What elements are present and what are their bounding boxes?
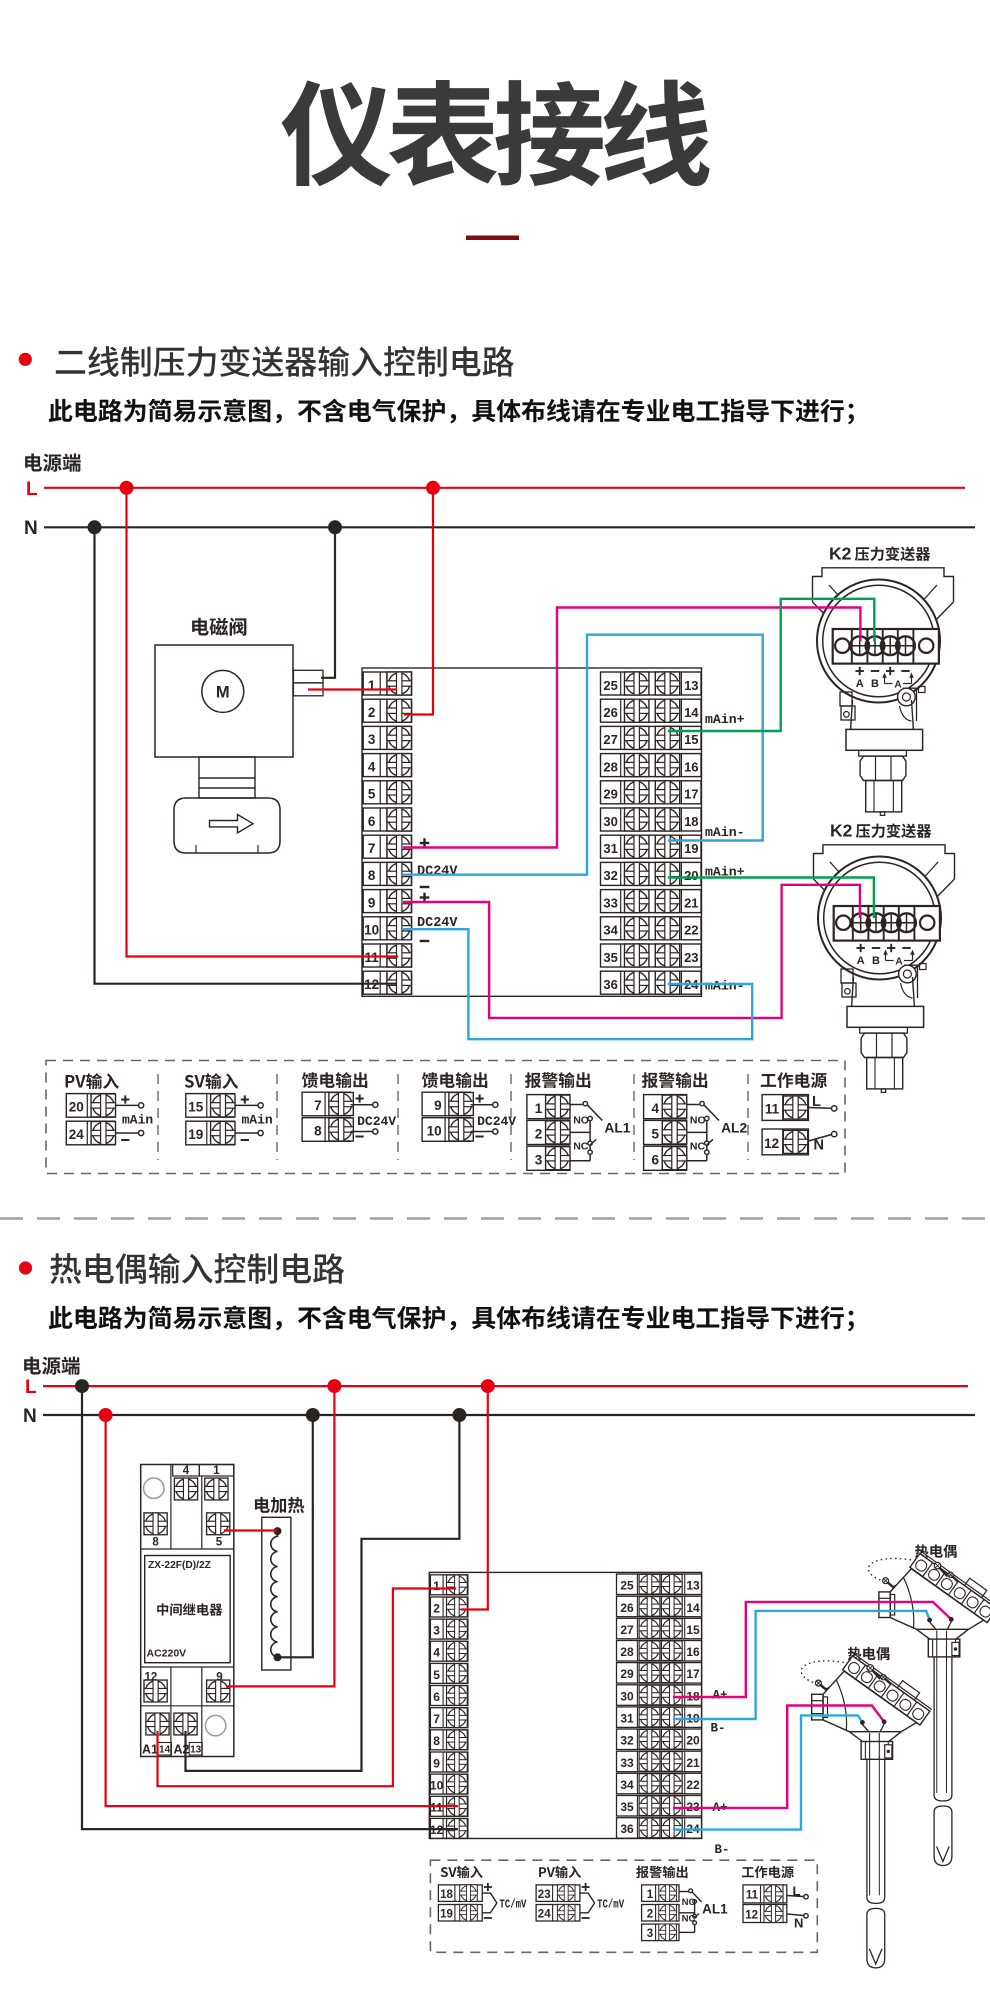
svg-text:ZX-22F(D)/2Z: ZX-22F(D)/2Z xyxy=(148,1560,211,1571)
svg-text:25: 25 xyxy=(603,678,617,693)
svg-text:20: 20 xyxy=(684,868,698,883)
svg-text:14: 14 xyxy=(159,1745,171,1756)
svg-text:21: 21 xyxy=(686,1756,700,1770)
svg-text:30: 30 xyxy=(603,814,617,829)
svg-text:M: M xyxy=(216,684,230,702)
svg-text:4: 4 xyxy=(651,1101,659,1116)
svg-text:33: 33 xyxy=(603,895,617,910)
svg-text:3: 3 xyxy=(647,1928,653,1940)
svg-text:1: 1 xyxy=(213,1465,220,1477)
svg-text:B-: B- xyxy=(711,1722,726,1736)
svg-text:18: 18 xyxy=(684,814,698,829)
svg-text:24: 24 xyxy=(538,1909,551,1921)
svg-text:5: 5 xyxy=(433,1668,440,1682)
svg-text:3: 3 xyxy=(535,1152,543,1167)
svg-text:A1: A1 xyxy=(142,1743,158,1757)
svg-text:14: 14 xyxy=(686,1601,700,1615)
svg-text:DC24V: DC24V xyxy=(357,1114,396,1129)
svg-text:30: 30 xyxy=(620,1689,634,1703)
svg-text:NO: NO xyxy=(690,1115,706,1127)
svg-text:N: N xyxy=(23,1406,37,1427)
svg-text:26: 26 xyxy=(603,705,617,720)
svg-text:27: 27 xyxy=(620,1623,634,1637)
svg-text:5: 5 xyxy=(651,1127,659,1142)
svg-text:27: 27 xyxy=(603,732,617,747)
svg-text:7: 7 xyxy=(433,1712,440,1726)
svg-text:23: 23 xyxy=(538,1889,551,1901)
svg-text:10: 10 xyxy=(364,923,379,938)
svg-text:19: 19 xyxy=(684,841,698,856)
svg-text:6: 6 xyxy=(651,1152,659,1167)
svg-text:3: 3 xyxy=(433,1624,440,1638)
svg-text:28: 28 xyxy=(603,759,617,774)
svg-text:8: 8 xyxy=(314,1124,322,1139)
svg-text:2: 2 xyxy=(647,1909,653,1921)
svg-text:16: 16 xyxy=(684,759,698,774)
svg-text:24: 24 xyxy=(69,1127,85,1142)
svg-text:36: 36 xyxy=(620,1822,634,1836)
svg-text:NO: NO xyxy=(573,1115,589,1127)
svg-text:mAin: mAin xyxy=(242,1113,273,1128)
svg-text:11: 11 xyxy=(746,1890,759,1902)
svg-text:19: 19 xyxy=(440,1909,453,1921)
svg-text:34: 34 xyxy=(620,1778,634,1792)
svg-text:AC220V: AC220V xyxy=(147,1648,187,1660)
svg-text:1: 1 xyxy=(535,1101,543,1116)
svg-text:DC24V: DC24V xyxy=(417,865,458,880)
svg-text:35: 35 xyxy=(603,950,617,965)
svg-text:31: 31 xyxy=(603,841,617,856)
svg-text:B-: B- xyxy=(715,1843,730,1857)
svg-text:2: 2 xyxy=(368,705,376,720)
svg-text:mAin-: mAin- xyxy=(705,979,745,994)
svg-text:8: 8 xyxy=(368,868,376,883)
svg-text:9: 9 xyxy=(434,1098,442,1113)
svg-text:mAin-: mAin- xyxy=(705,825,745,840)
svg-text:AL2: AL2 xyxy=(721,1121,747,1136)
svg-text:L: L xyxy=(26,479,38,500)
svg-text:17: 17 xyxy=(686,1667,700,1681)
svg-text:8: 8 xyxy=(152,1537,159,1549)
svg-text:17: 17 xyxy=(684,787,698,802)
svg-text:15: 15 xyxy=(686,1623,700,1637)
svg-text:1: 1 xyxy=(433,1579,440,1593)
svg-text:21: 21 xyxy=(684,895,698,910)
svg-text:12: 12 xyxy=(764,1136,779,1151)
svg-text:TC/mV: TC/mV xyxy=(499,1899,526,1912)
svg-text:7: 7 xyxy=(368,841,376,856)
svg-text:29: 29 xyxy=(620,1667,634,1681)
svg-text:4: 4 xyxy=(368,759,376,774)
svg-text:32: 32 xyxy=(603,868,617,883)
svg-text:4: 4 xyxy=(183,1465,190,1477)
svg-text:22: 22 xyxy=(686,1778,700,1792)
svg-text:36: 36 xyxy=(603,977,617,992)
svg-text:4: 4 xyxy=(433,1646,440,1660)
svg-text:11: 11 xyxy=(765,1102,780,1117)
svg-text:26: 26 xyxy=(620,1601,634,1615)
svg-text:DC24V: DC24V xyxy=(477,1114,516,1129)
svg-text:20: 20 xyxy=(686,1734,700,1748)
svg-text:NC: NC xyxy=(690,1141,706,1153)
svg-text:6: 6 xyxy=(433,1690,440,1704)
svg-text:mAin+: mAin+ xyxy=(705,712,745,727)
svg-text:mAin: mAin xyxy=(122,1113,153,1128)
svg-text:13: 13 xyxy=(686,1579,700,1593)
svg-text:2: 2 xyxy=(535,1127,543,1142)
svg-text:25: 25 xyxy=(620,1579,634,1593)
svg-text:15: 15 xyxy=(188,1099,204,1114)
svg-text:A+: A+ xyxy=(713,1689,728,1703)
svg-text:35: 35 xyxy=(620,1800,634,1814)
svg-text:9: 9 xyxy=(433,1756,440,1770)
svg-text:16: 16 xyxy=(686,1645,700,1659)
svg-text:28: 28 xyxy=(620,1645,634,1659)
svg-text:20: 20 xyxy=(69,1099,84,1114)
svg-text:7: 7 xyxy=(314,1098,322,1113)
svg-text:34: 34 xyxy=(603,923,618,938)
svg-text:2: 2 xyxy=(433,1601,440,1615)
svg-text:14: 14 xyxy=(684,705,699,720)
svg-text:13: 13 xyxy=(684,678,698,693)
svg-text:33: 33 xyxy=(620,1756,634,1770)
svg-text:5: 5 xyxy=(368,787,376,802)
svg-text:19: 19 xyxy=(188,1127,203,1142)
svg-text:8: 8 xyxy=(433,1734,440,1748)
svg-text:13: 13 xyxy=(190,1745,202,1756)
svg-text:TC/mV: TC/mV xyxy=(597,1899,624,1912)
svg-text:N: N xyxy=(24,518,38,539)
svg-text:12: 12 xyxy=(745,1909,758,1921)
svg-text:23: 23 xyxy=(684,950,698,965)
svg-text:K2: K2 xyxy=(829,544,852,564)
svg-text:A: A xyxy=(856,678,864,690)
svg-text:AL1: AL1 xyxy=(604,1121,630,1136)
svg-text:B: B xyxy=(871,678,879,690)
svg-text:22: 22 xyxy=(684,923,698,938)
svg-text:5: 5 xyxy=(216,1537,223,1549)
svg-text:1: 1 xyxy=(647,1889,654,1901)
svg-text:AL1: AL1 xyxy=(702,1902,728,1917)
svg-text:31: 31 xyxy=(620,1712,634,1726)
svg-text:L: L xyxy=(25,1377,37,1398)
svg-text:15: 15 xyxy=(684,732,698,747)
svg-text:6: 6 xyxy=(368,814,376,829)
svg-text:NC: NC xyxy=(682,1914,696,1925)
svg-text:A: A xyxy=(894,680,901,691)
svg-text:29: 29 xyxy=(603,787,617,802)
svg-text:3: 3 xyxy=(368,732,376,747)
svg-text:11: 11 xyxy=(430,1801,443,1815)
svg-text:18: 18 xyxy=(440,1889,453,1901)
svg-text:A2: A2 xyxy=(174,1743,190,1757)
svg-text:32: 32 xyxy=(620,1734,634,1748)
svg-text:9: 9 xyxy=(368,895,376,910)
svg-text:NC: NC xyxy=(573,1141,589,1153)
svg-text:N: N xyxy=(794,1916,803,1931)
svg-text:10: 10 xyxy=(427,1124,442,1139)
svg-text:10: 10 xyxy=(430,1779,444,1793)
